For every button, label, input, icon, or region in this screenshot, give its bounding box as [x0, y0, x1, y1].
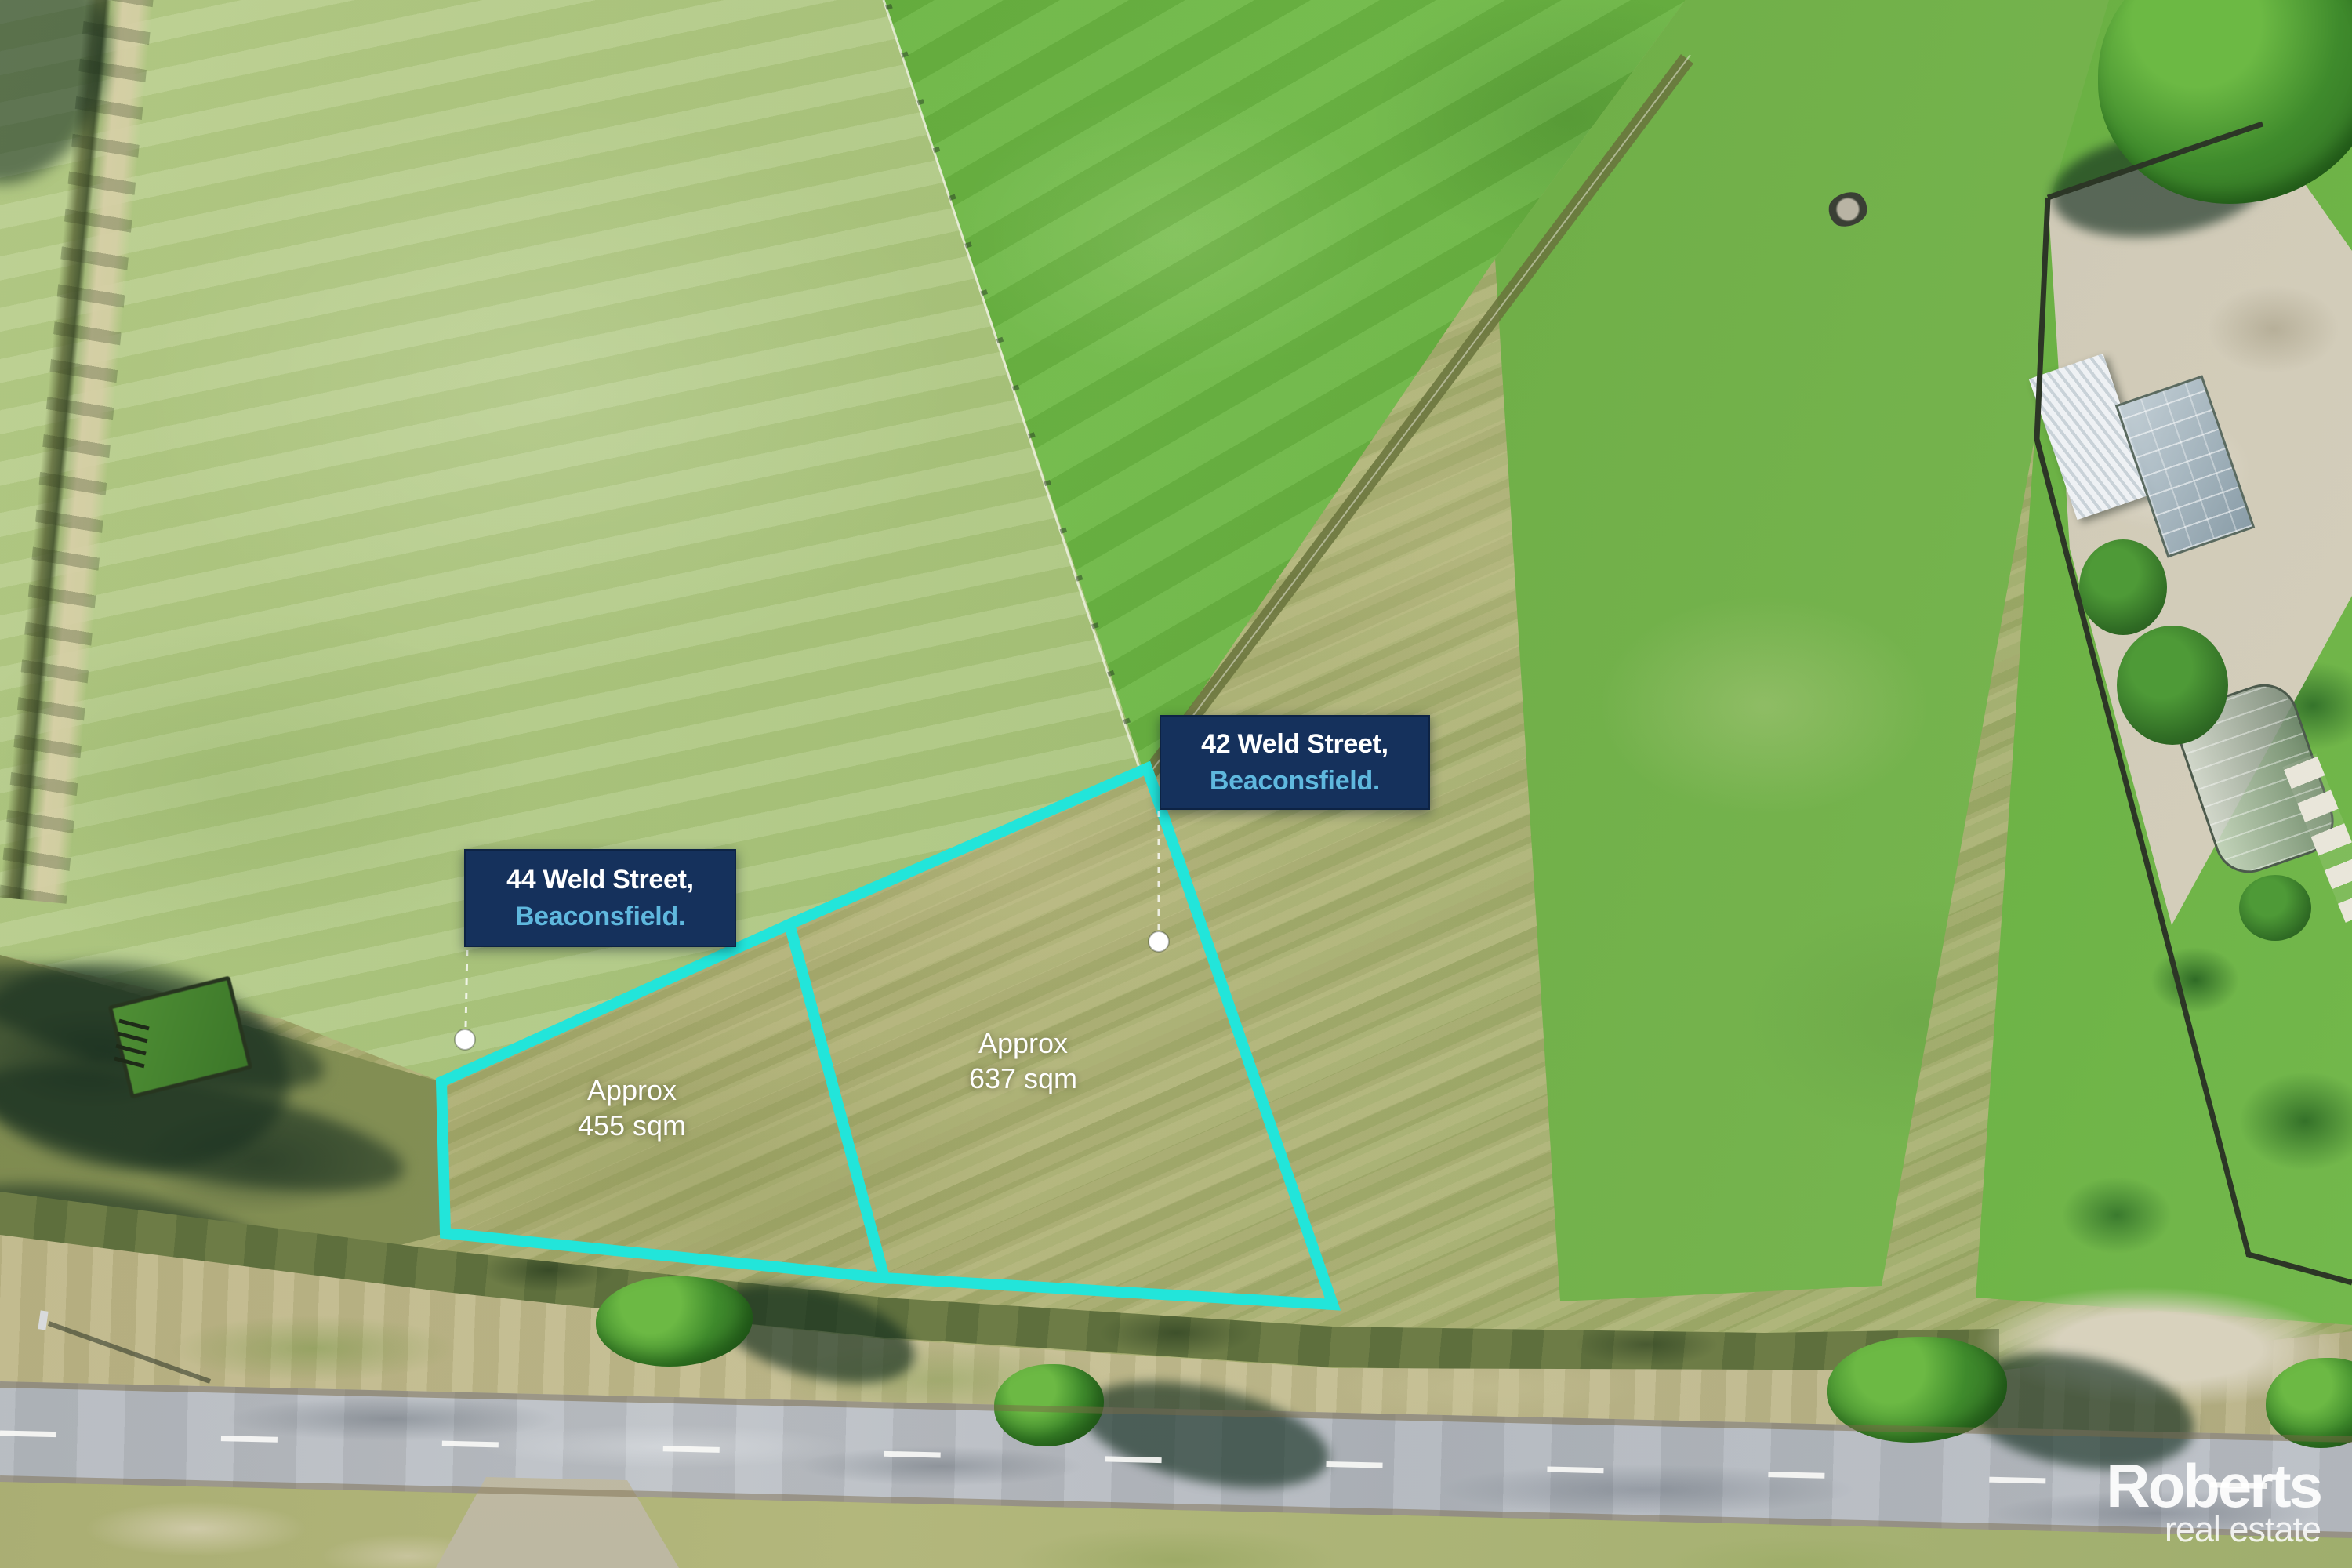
lot-42-area-label: Approx 637 sqm	[969, 1025, 1077, 1096]
agency-watermark: Roberts real estate	[2106, 1460, 2321, 1548]
lot-44-marker-dot	[455, 1029, 475, 1050]
lot-42-address-label: 42 Weld Street, Beaconsfield.	[1160, 715, 1430, 810]
lot-44-street-text: 44 Weld Street,	[506, 862, 694, 898]
agency-brand-text: Roberts	[2106, 1460, 2321, 1512]
lot-42-area-sqm: 637 sqm	[969, 1061, 1077, 1096]
lot-42-area-approx: Approx	[969, 1025, 1077, 1061]
aerial-photo: 44 Weld Street, Beaconsfield. 42 Weld St…	[0, 0, 2352, 1568]
lot-44-area-sqm: 455 sqm	[578, 1108, 686, 1143]
lot-44-leader-line	[466, 946, 467, 1027]
lot-44-area-label: Approx 455 sqm	[578, 1073, 686, 1143]
lot-44-area-approx: Approx	[578, 1073, 686, 1108]
lot-42-street-text: 42 Weld Street,	[1201, 726, 1388, 763]
lot-42-suburb-text: Beaconsfield.	[1210, 763, 1380, 800]
lot-42-marker-dot	[1149, 931, 1169, 952]
lot-44-address-label: 44 Weld Street, Beaconsfield.	[464, 849, 736, 947]
lot-44-suburb-text: Beaconsfield.	[515, 898, 685, 935]
